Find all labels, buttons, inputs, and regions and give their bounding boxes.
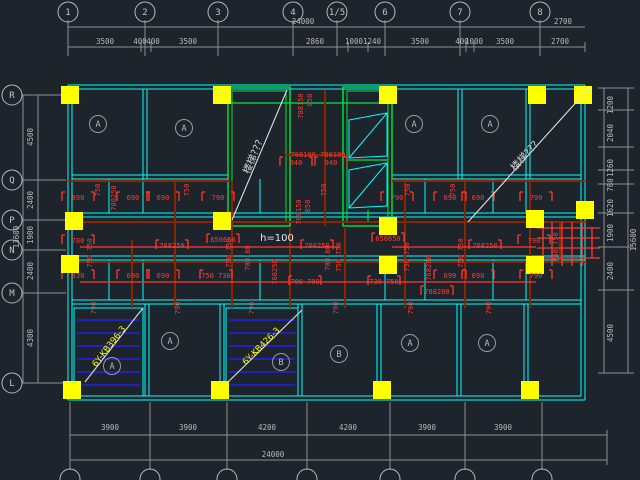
dim-total-bottom: 24000 xyxy=(262,450,285,459)
dim-top: 400 xyxy=(146,37,160,46)
red-dim-text: 768250 xyxy=(159,242,184,250)
red-dim-text: 788100 788100 xyxy=(291,151,346,159)
axis-bubble-left: Q xyxy=(9,176,14,186)
floor-plan-drawing: 12341/5678RQPNML240002700350040040035002… xyxy=(0,0,640,480)
room-label: A xyxy=(407,339,412,349)
red-dim-text: 790 xyxy=(174,302,182,315)
axis-bubble-left: R xyxy=(9,91,15,101)
red-dim-text: 780180 xyxy=(324,245,332,270)
axis-bubble-top: 2 xyxy=(142,8,147,18)
dim-left: 4500 xyxy=(26,127,35,146)
dim-left: 2400 xyxy=(26,261,35,280)
red-dim-text: 780 xyxy=(72,237,85,245)
leader-lines xyxy=(85,87,590,382)
red-dim-text: 790 xyxy=(391,194,404,202)
red-dim-text: 690 xyxy=(472,272,485,280)
drawing-text: 12341/5678RQPNML240002700350040040035002… xyxy=(9,8,638,459)
room-label: A xyxy=(167,337,172,347)
column xyxy=(528,86,546,104)
dim-top: 3500 xyxy=(496,37,515,46)
red-dim-text: 940 xyxy=(325,159,338,167)
column xyxy=(65,212,83,230)
red-dim-text: 790 xyxy=(528,237,541,245)
column xyxy=(61,86,79,104)
room-label: A xyxy=(109,362,114,372)
dim-right: 1200 xyxy=(606,95,615,114)
red-dim-text: 750 xyxy=(183,184,191,197)
red-dim-text: 700 700 xyxy=(290,278,320,286)
dim-total-top-right: 2700 xyxy=(554,17,573,26)
column xyxy=(379,86,397,104)
red-dim-text: 788200 xyxy=(424,288,449,296)
red-dim-text: 850 xyxy=(306,94,314,107)
dim-right: 1620 xyxy=(606,198,615,217)
red-dim-text: 790 xyxy=(212,194,225,202)
red-dim-text: 690 xyxy=(444,272,457,280)
cad-viewport[interactable]: 12341/5678RQPNML240002700350040040035002… xyxy=(0,0,640,480)
red-dim-text: 790 xyxy=(90,302,98,315)
red-dim-text: 690 xyxy=(157,272,170,280)
red-dim-text: 850 xyxy=(304,200,312,213)
red-dim-text: 750 xyxy=(449,184,457,197)
red-dim-text: 790 xyxy=(530,194,543,202)
red-dim-text: 690 xyxy=(127,194,140,202)
room-label: B xyxy=(336,350,341,360)
red-dim-text: 750 750 xyxy=(225,238,233,268)
dim-right: 2040 xyxy=(606,123,615,142)
red-dim-text: 750 750 xyxy=(403,242,411,272)
red-dim-text: 768250 xyxy=(425,255,433,280)
dim-left: 4300 xyxy=(26,328,35,347)
dim-total-left: 13600 xyxy=(12,225,21,248)
red-dim-text: 750 xyxy=(404,184,412,197)
room-label: A xyxy=(411,120,416,130)
room-label: A xyxy=(487,120,492,130)
axis-bubble-top: 8 xyxy=(537,8,542,18)
red-dim-text: 750 750 xyxy=(552,232,560,262)
column xyxy=(379,256,397,274)
dim-bottom: 3900 xyxy=(179,423,198,432)
dim-right: 1260 xyxy=(606,158,615,177)
column xyxy=(373,381,391,399)
red-dim-text: 790 xyxy=(407,302,415,315)
dim-top: 400 xyxy=(133,37,147,46)
column xyxy=(213,212,231,230)
column xyxy=(61,255,79,273)
dim-right: 2400 xyxy=(606,261,615,280)
red-dim-text: 790 xyxy=(248,302,256,315)
column xyxy=(63,381,81,399)
red-dim-text: 690 xyxy=(472,194,485,202)
axis-bubble-left: M xyxy=(9,289,15,299)
red-dim-text: 750 xyxy=(94,184,102,197)
axis-bubble-top: 7 xyxy=(457,8,462,18)
stair-note: 楼梯??? xyxy=(508,138,542,173)
red-dim-text: 750 xyxy=(320,184,328,197)
dim-top: 1000 xyxy=(345,37,364,46)
dim-bottom: 4200 xyxy=(258,423,277,432)
red-dim-text: 790 xyxy=(530,272,543,280)
dim-bottom: 4200 xyxy=(339,423,358,432)
column xyxy=(211,381,229,399)
beam-lines xyxy=(68,90,585,308)
column xyxy=(213,86,231,104)
red-dim-text: 830 xyxy=(72,272,85,280)
slab-height-note: h=100 xyxy=(260,233,294,244)
axis-bubble-top: 1/5 xyxy=(329,8,345,18)
axis-bubble-left: L xyxy=(9,379,14,389)
red-dim-text: 788150 xyxy=(295,199,303,224)
axis-bubble-top: 6 xyxy=(382,8,387,18)
red-dim-text: 750 750 xyxy=(457,238,465,268)
red-dim-text: 768250 xyxy=(271,259,279,284)
red-dim-text: 750 730 xyxy=(201,272,231,280)
column xyxy=(576,201,594,219)
red-dim-text: 940 xyxy=(290,159,303,167)
dim-top: 3500 xyxy=(96,37,115,46)
red-dim-text: 790 xyxy=(485,302,493,315)
dim-total-top: 24000 xyxy=(292,17,315,26)
red-dim-text: 890 xyxy=(72,194,85,202)
red-dim-text: 780180 xyxy=(244,245,252,270)
dim-top: 2860 xyxy=(306,37,325,46)
dim-top: 3500 xyxy=(179,37,198,46)
dim-left: 2400 xyxy=(26,190,35,209)
red-dim-text: 790 xyxy=(332,302,340,315)
dim-top: 2700 xyxy=(551,37,570,46)
axis-bubble-left: P xyxy=(9,216,15,226)
red-dim-text: 730 750 xyxy=(369,278,399,286)
column xyxy=(526,210,544,228)
dim-right: 780 xyxy=(606,178,615,192)
red-dim-text: 750 750 xyxy=(335,242,343,272)
red-dim-text: 768250 xyxy=(472,242,497,250)
dim-bottom: 3900 xyxy=(101,423,120,432)
red-dim-text: 690 xyxy=(127,272,140,280)
room-label: B xyxy=(278,358,283,368)
dim-bottom: 3900 xyxy=(494,423,513,432)
red-dim-text: 788150 xyxy=(297,93,305,118)
dim-left: 1900 xyxy=(26,225,35,244)
column xyxy=(521,381,539,399)
dim-top: 1000 xyxy=(465,37,484,46)
dim-right: 1900 xyxy=(606,223,615,242)
red-dim-text: 780250 xyxy=(110,185,118,210)
column xyxy=(379,217,397,235)
red-dim-text: 690 xyxy=(157,194,170,202)
stair-note: 楼梯??? xyxy=(240,138,266,176)
axis-bubble-top: 1 xyxy=(65,8,70,18)
dim-top: 1240 xyxy=(363,37,382,46)
dim-top: 3500 xyxy=(411,37,430,46)
dim-bottom: 3900 xyxy=(418,423,437,432)
dim-right: 4500 xyxy=(606,323,615,342)
red-dim-text: 650650 xyxy=(375,235,400,243)
axis-bubble-top: 3 xyxy=(215,8,220,18)
red-dim-text: 750 750 xyxy=(86,238,94,268)
dim-total-right: 15600 xyxy=(629,228,638,251)
room-label: A xyxy=(484,339,489,349)
room-label: A xyxy=(95,120,100,130)
room-label: A xyxy=(181,124,186,134)
